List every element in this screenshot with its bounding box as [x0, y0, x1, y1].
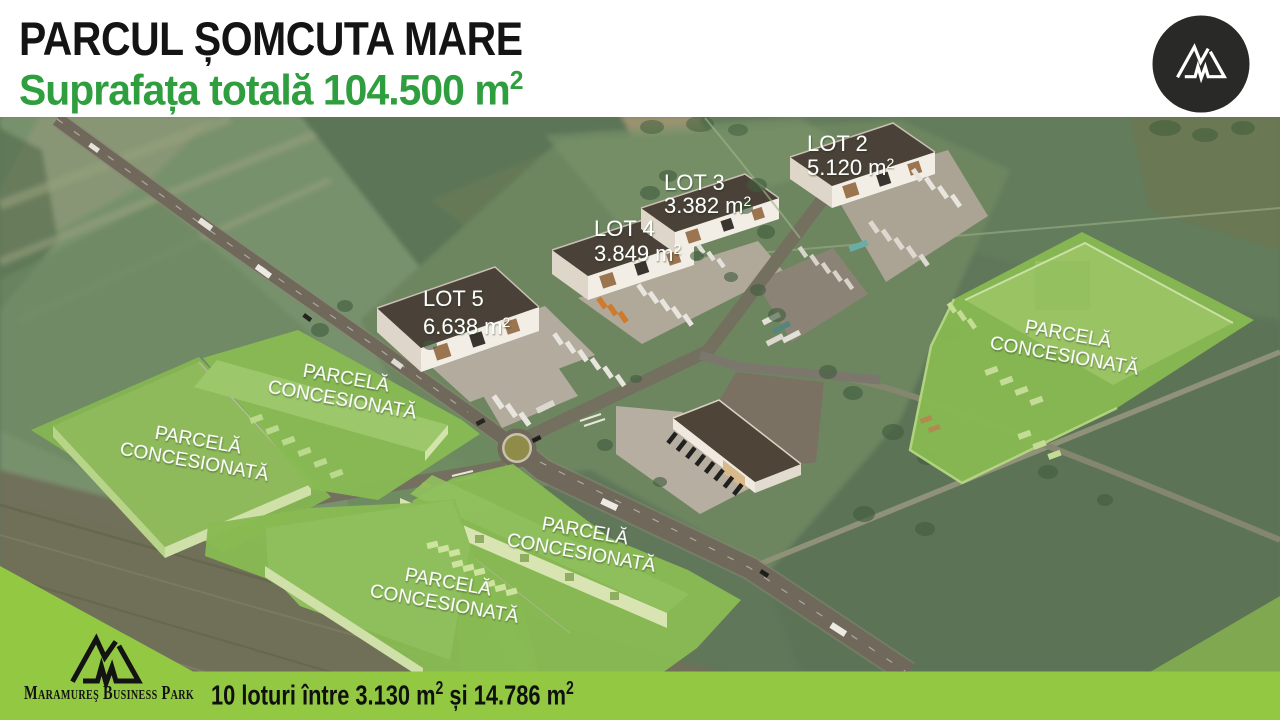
svg-text:LOT 4: LOT 4	[594, 216, 655, 241]
svg-text:LOT 5: LOT 5	[423, 286, 484, 311]
svg-text:3.849 m2: 3.849 m2	[594, 241, 682, 266]
svg-text:LOT 3: LOT 3	[664, 170, 725, 195]
svg-text:LOT 2: LOT 2	[807, 131, 868, 156]
svg-text:5.120 m2: 5.120 m2	[807, 155, 895, 180]
svg-text:6.638 m2: 6.638 m2	[423, 314, 511, 339]
svg-text:3.382 m2: 3.382 m2	[664, 193, 752, 218]
